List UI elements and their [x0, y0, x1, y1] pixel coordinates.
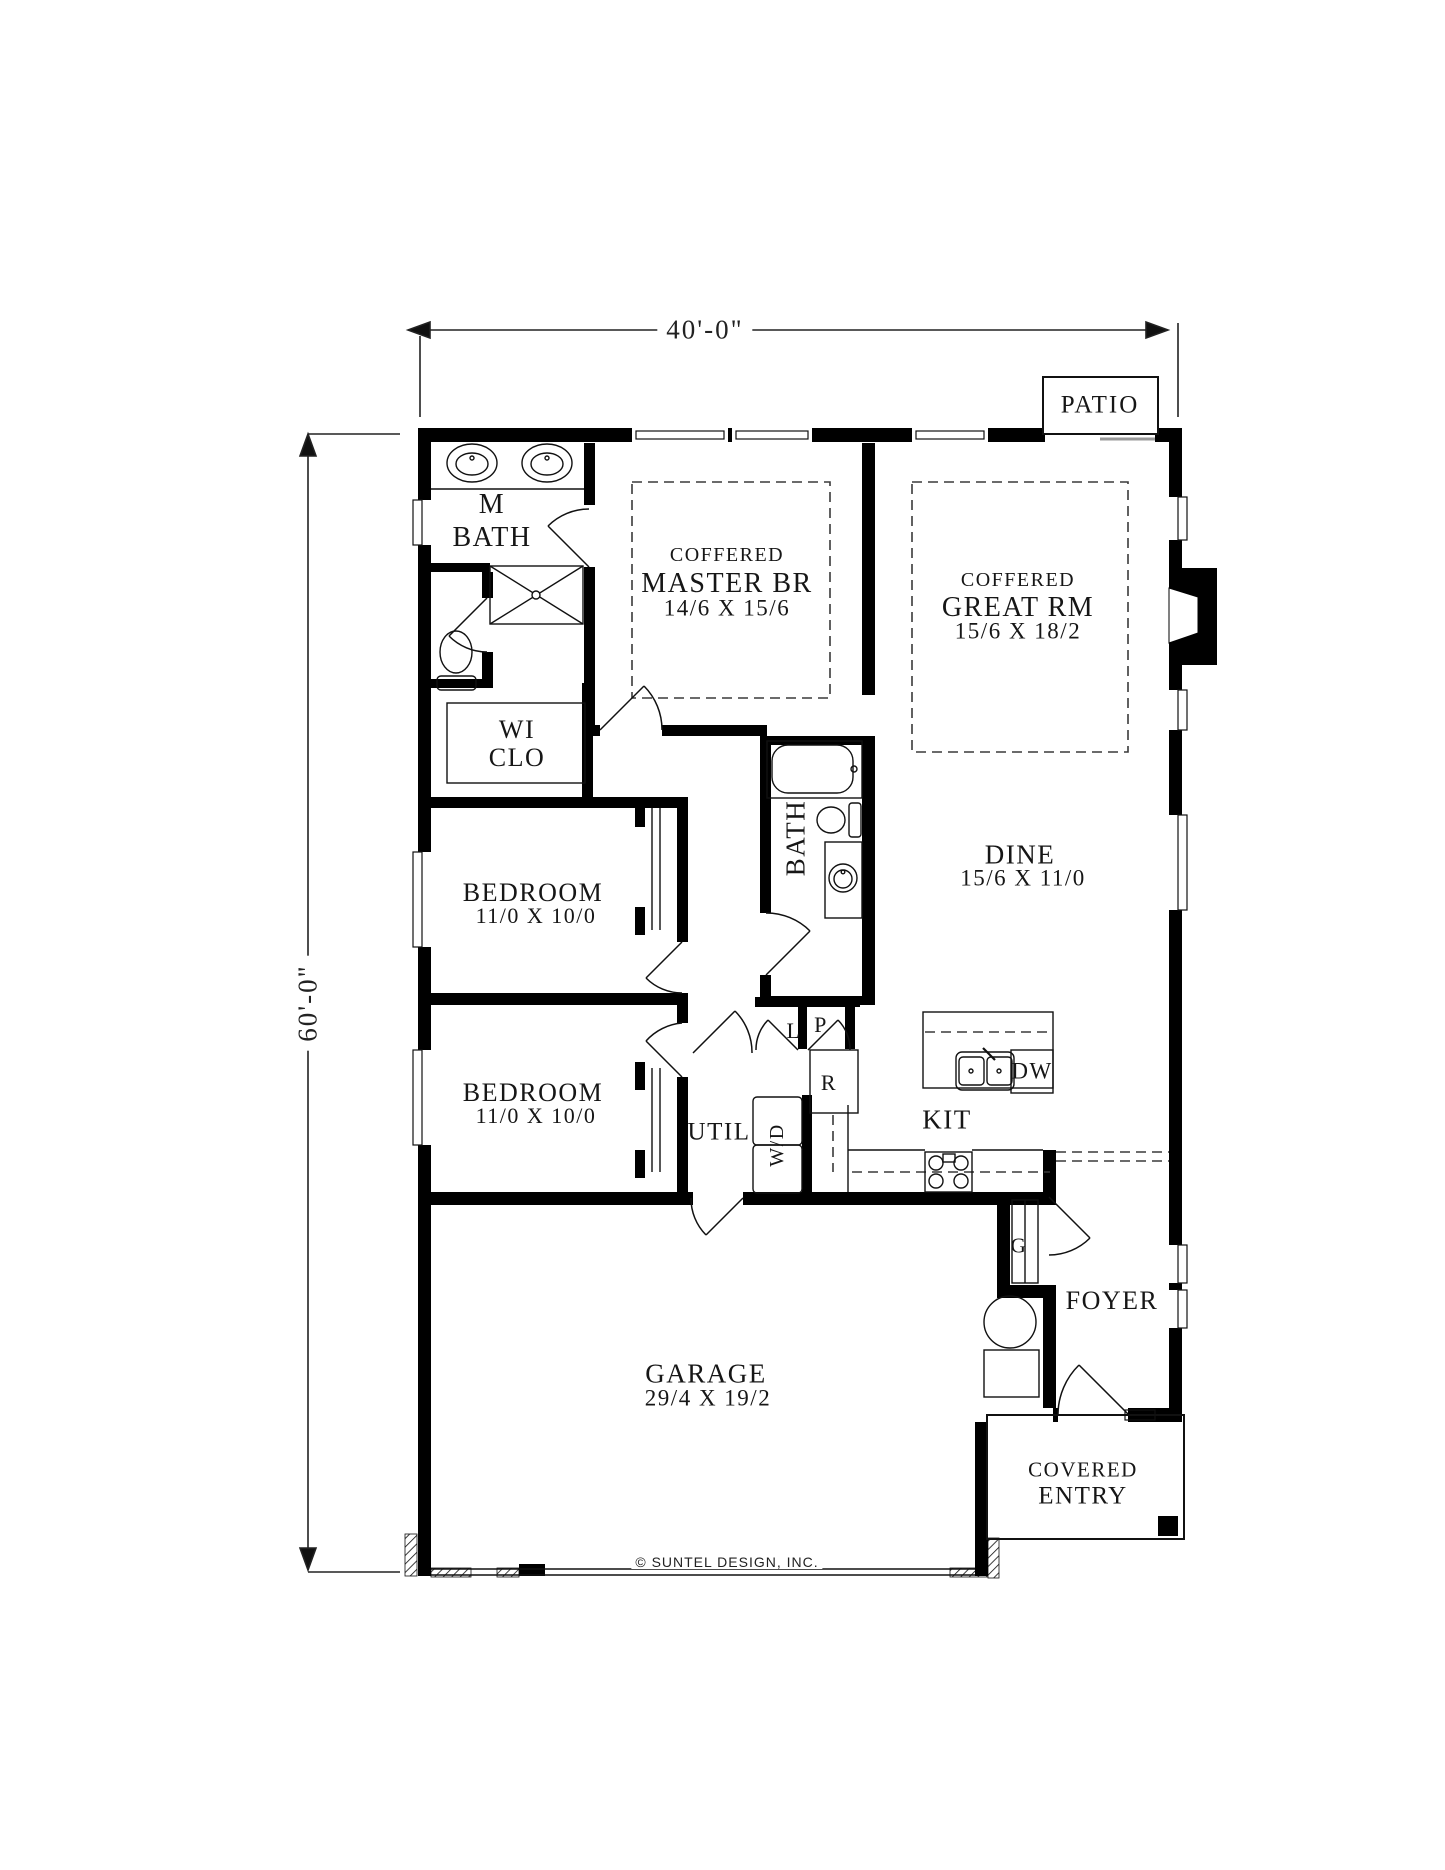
- mbath-sink-right: [522, 444, 572, 482]
- entry-post: [1158, 1516, 1178, 1536]
- plan-linework: [0, 0, 1445, 1870]
- label-dw: DW: [1011, 1060, 1052, 1083]
- label-linen: L: [787, 1020, 802, 1042]
- label-wic-2: CLO: [489, 745, 546, 771]
- label-foyer: FOYER: [1066, 1288, 1159, 1314]
- label-mbath-1: M: [479, 491, 505, 519]
- label-mbath-2: BATH: [452, 524, 531, 552]
- copyright-text: © SUNTEL DESIGN, INC.: [631, 1555, 822, 1569]
- dimension-height-label: 60'-0": [295, 955, 322, 1050]
- label-great-size: 15/6 X 18/2: [955, 620, 1081, 643]
- bath-tub: [767, 741, 862, 798]
- shower: [490, 566, 583, 624]
- label-garage: GARAGE: [645, 1361, 767, 1388]
- label-master-size: 14/6 X 15/6: [664, 597, 790, 620]
- fireplace: [1169, 588, 1198, 643]
- label-g-closet: G: [1011, 1236, 1028, 1257]
- label-wic-1: WI: [499, 717, 535, 743]
- water-heater: [984, 1296, 1039, 1397]
- label-kit: KIT: [922, 1107, 971, 1134]
- island-sink: [956, 1048, 1014, 1090]
- label-wd: W/D: [767, 1123, 787, 1166]
- bedroom2-closet: [652, 1068, 660, 1172]
- label-great-coffered: COFFERED: [961, 570, 1075, 590]
- label-bedroom1-size: 11/0 X 10/0: [476, 905, 597, 927]
- label-entry-1: COVERED: [1028, 1460, 1138, 1481]
- label-master-coffered: COFFERED: [670, 545, 784, 565]
- dimension-width-label: 40'-0": [657, 317, 752, 344]
- label-util: UTIL: [688, 1120, 751, 1145]
- label-garage-size: 29/4 X 19/2: [645, 1387, 771, 1410]
- door-swings: [449, 509, 1128, 1414]
- label-bath: BATH: [783, 800, 810, 877]
- label-entry-2: ENTRY: [1038, 1484, 1127, 1509]
- label-pantry: P: [814, 1014, 828, 1036]
- bedroom1-closet: [652, 808, 660, 930]
- label-dine-size: 15/6 X 11/0: [960, 867, 1086, 890]
- label-dine: DINE: [985, 842, 1055, 869]
- label-master-br: MASTER BR: [641, 570, 812, 598]
- mbath-sink-left: [447, 444, 497, 482]
- label-fridge: R: [821, 1072, 837, 1094]
- label-patio: PATIO: [1061, 393, 1140, 418]
- floor-plan-sheet: 40'-0" 60'-0" PATIO M BATH COFFERED MAST…: [0, 0, 1445, 1870]
- label-bedroom2-size: 11/0 X 10/0: [476, 1105, 597, 1127]
- bath-toilet: [817, 803, 861, 837]
- bath-vanity: [825, 842, 862, 918]
